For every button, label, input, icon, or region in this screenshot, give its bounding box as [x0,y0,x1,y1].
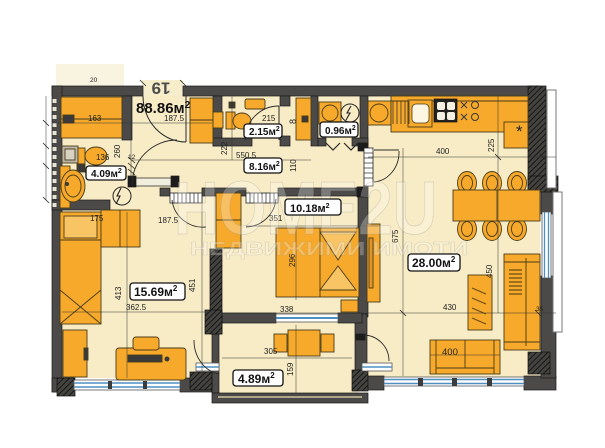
svg-text:4.09м2: 4.09м2 [91,168,122,180]
svg-text:305: 305 [264,347,278,356]
svg-text:338: 338 [280,305,294,314]
svg-text:362.5: 362.5 [126,303,147,312]
svg-text:28.00м2: 28.00м2 [412,255,456,270]
svg-text:8: 8 [288,119,298,124]
svg-text:19: 19 [152,79,171,98]
svg-text:4.89м2: 4.89м2 [238,371,275,386]
svg-text:450: 450 [485,264,494,278]
svg-text:430: 430 [443,303,457,312]
svg-text:*: * [516,122,523,141]
svg-text:225: 225 [487,138,496,152]
svg-text:136: 136 [96,153,110,162]
svg-text:88.86м2: 88.86м2 [136,100,191,117]
svg-text:12: 12 [128,154,136,161]
svg-text:35: 35 [536,306,544,313]
svg-text:260: 260 [113,144,122,158]
svg-text:413: 413 [114,286,123,300]
svg-text:400: 400 [442,347,458,358]
svg-text:0.96м2: 0.96м2 [325,125,356,137]
svg-text:175: 175 [90,214,104,223]
svg-text:8.16м2: 8.16м2 [249,161,280,173]
svg-text:400: 400 [436,147,450,156]
svg-text:215: 215 [262,114,276,123]
svg-text:163: 163 [88,114,102,123]
svg-text:159: 159 [286,362,295,376]
svg-text:15.69м2: 15.69м2 [134,284,178,299]
svg-text:20: 20 [90,77,98,84]
svg-text:222: 222 [220,141,229,155]
svg-text:451: 451 [188,278,197,292]
svg-text:10.18м2: 10.18м2 [290,203,330,215]
svg-text:2.15м2: 2.15м2 [249,126,280,138]
